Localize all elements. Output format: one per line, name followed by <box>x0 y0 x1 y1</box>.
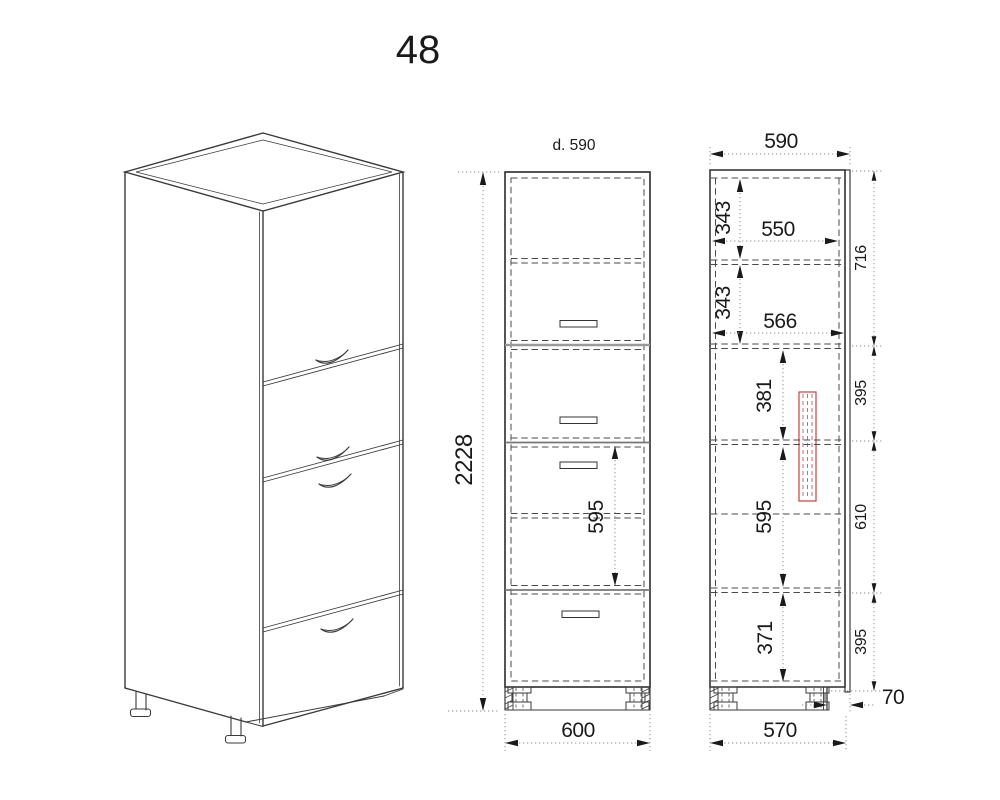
front-elevation-view: 2228 595 600 d. 590 <box>448 137 650 751</box>
cabinet-technical-drawing: 48 <box>0 0 1000 800</box>
dim-label-550: 550 <box>761 218 795 241</box>
drawing-number: 48 <box>396 28 441 72</box>
handle-icon <box>316 350 348 363</box>
dim-label-595: 595 <box>753 500 776 534</box>
dim-label-395-upper: 395 <box>853 380 870 406</box>
dim-label-343-upper: 343 <box>712 201 735 235</box>
side-hidden-lines-over <box>711 440 844 445</box>
dim-side-381: 381 <box>753 350 786 440</box>
side-plinth <box>710 687 829 710</box>
dim-label-566: 566 <box>763 310 797 333</box>
handle-icon <box>562 611 599 618</box>
depth-note-label: d. 590 <box>552 137 595 154</box>
front-handles <box>560 321 599 618</box>
foot-icon <box>508 687 531 710</box>
handle-icon <box>317 447 349 460</box>
side-section-view: 590 343 550 343 566 <box>710 130 904 751</box>
dim-label-width: 600 <box>561 719 595 742</box>
dim-label-height: 2228 <box>451 434 478 486</box>
dim-label-716: 716 <box>853 245 870 271</box>
dim-front-height: 2228 <box>448 172 500 711</box>
handle-icon <box>560 321 597 328</box>
front-carcass-outline <box>505 172 650 687</box>
dim-side-bottom: 570 <box>710 714 846 751</box>
dim-side-343-upper: 343 <box>712 179 743 259</box>
dim-label-395-lower: 395 <box>853 629 870 655</box>
foot-icon <box>714 687 737 710</box>
front-hidden-shelves <box>511 259 644 595</box>
handle-icon <box>321 619 353 632</box>
dim-side-depth: 590 <box>710 130 850 167</box>
dim-label-381: 381 <box>753 379 776 413</box>
front-door-hidden-outline <box>511 178 644 681</box>
handle-icon <box>560 462 597 469</box>
iso-body-edges <box>125 172 403 727</box>
side-carcass-outline <box>710 170 845 687</box>
iso-handles <box>316 350 353 632</box>
highlighted-fitting <box>799 392 816 501</box>
handle-icon <box>319 474 351 487</box>
dim-label-cavity: 595 <box>585 500 608 534</box>
side-hidden-lines <box>711 178 844 681</box>
dim-side-595: 595 <box>753 447 786 587</box>
iso-top-face <box>125 133 403 211</box>
dim-front-width: 600 <box>505 714 650 751</box>
dim-label-610: 610 <box>853 504 870 530</box>
dim-label-depth: 590 <box>764 130 798 153</box>
technical-drawing-page: 48 <box>0 0 1000 800</box>
handle-icon <box>560 417 597 424</box>
dim-side-371: 371 <box>754 593 786 682</box>
isometric-view <box>125 133 403 743</box>
dim-label-371: 371 <box>754 621 777 655</box>
iso-front-divisions <box>263 344 403 632</box>
dim-side-recess: 70 <box>802 686 904 712</box>
dim-label-70: 70 <box>882 686 904 709</box>
front-plinth <box>505 687 650 710</box>
dim-label-343-lower: 343 <box>712 286 735 320</box>
dim-label-570: 570 <box>763 719 797 742</box>
